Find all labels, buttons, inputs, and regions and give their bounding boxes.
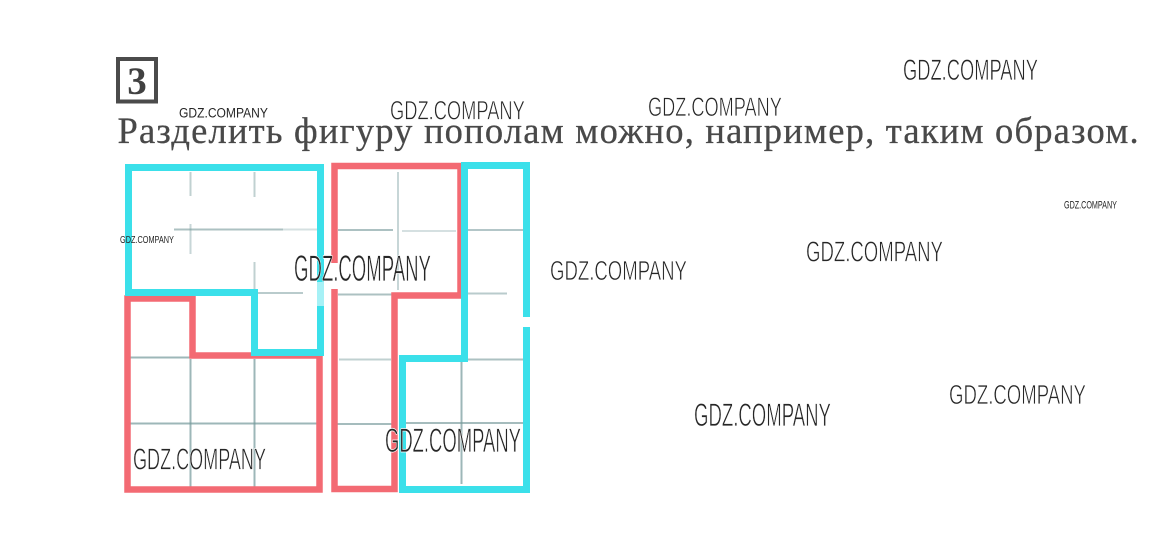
svg-text:GDZ.COMPANY: GDZ.COMPANY: [903, 55, 1038, 88]
svg-text:GDZ.COMPANY: GDZ.COMPANY: [120, 234, 174, 245]
svg-text:GDZ.COMPANY: GDZ.COMPANY: [385, 421, 521, 460]
svg-text:GDZ.COMPANY: GDZ.COMPANY: [694, 397, 831, 434]
svg-text:GDZ.COMPANY: GDZ.COMPANY: [133, 443, 266, 477]
svg-text:3: 3: [127, 60, 147, 103]
svg-text:Разделить фигуру пополам можно: Разделить фигуру пополам можно, например…: [118, 110, 1140, 151]
svg-text:GDZ.COMPANY: GDZ.COMPANY: [179, 105, 268, 121]
svg-text:GDZ.COMPANY: GDZ.COMPANY: [949, 379, 1086, 411]
svg-text:GDZ.COMPANY: GDZ.COMPANY: [390, 95, 525, 125]
svg-text:GDZ.COMPANY: GDZ.COMPANY: [294, 249, 431, 289]
svg-text:GDZ.COMPANY: GDZ.COMPANY: [806, 236, 943, 268]
svg-text:GDZ.COMPANY: GDZ.COMPANY: [1064, 199, 1117, 211]
svg-text:GDZ.COMPANY: GDZ.COMPANY: [648, 91, 782, 122]
svg-text:GDZ.COMPANY: GDZ.COMPANY: [550, 255, 687, 287]
